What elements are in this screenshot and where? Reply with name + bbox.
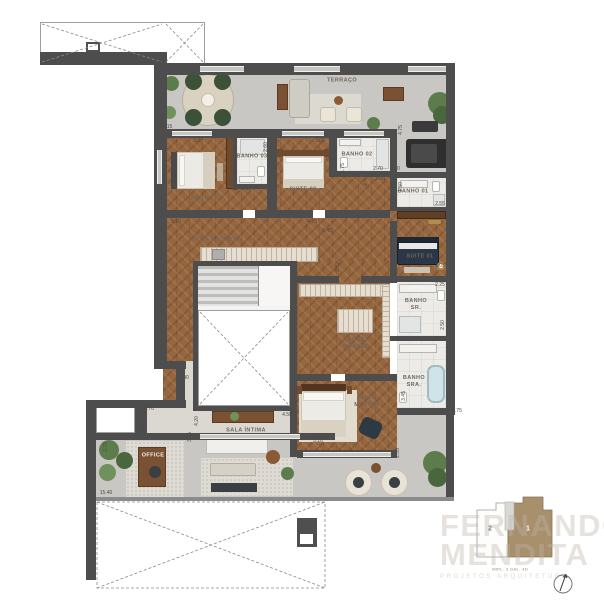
dimension-label: 2.25	[435, 282, 445, 288]
dimension-label: 1.75	[340, 163, 346, 173]
dimension-label: 4.50	[282, 412, 292, 418]
room-label: CLOSET MASTER	[343, 337, 369, 351]
gourmet-counter	[206, 439, 268, 454]
dimension-label: 3.02	[315, 138, 325, 144]
bed-pillows	[399, 243, 437, 249]
room-label: TERRAÇO	[327, 78, 357, 85]
dining-chair	[185, 73, 202, 90]
door-opening	[243, 210, 255, 218]
wall	[193, 406, 297, 411]
room-label: SALA ÍNTIMA	[226, 428, 266, 435]
window	[344, 131, 384, 136]
wall	[96, 400, 186, 408]
room-label: OFFICE	[142, 453, 165, 460]
office-void	[96, 405, 135, 433]
bed-headboard	[301, 384, 346, 391]
window	[200, 66, 244, 72]
dimension-label: 2.25	[435, 336, 445, 342]
bed-pillows	[303, 392, 344, 401]
dining-chair	[185, 109, 202, 126]
office-chair	[149, 466, 161, 478]
wall	[446, 63, 455, 413]
bed-blanket	[203, 152, 215, 189]
nightstand	[347, 386, 352, 394]
dimension-label: 2.60	[263, 142, 269, 152]
dimension-label: 3.45	[401, 391, 407, 401]
lounge-sofa	[210, 463, 256, 476]
wall	[390, 207, 455, 211]
closet-shelf-top	[299, 284, 383, 297]
dimension-label: 15.40	[100, 490, 113, 496]
window	[294, 66, 340, 72]
bed-pillows	[179, 155, 185, 186]
shower	[399, 316, 421, 333]
dimension-label: 3.15	[187, 432, 193, 442]
sideboard	[212, 411, 274, 423]
dimension-label: 2.35	[395, 448, 401, 458]
dimension-label: 2.70	[144, 406, 154, 412]
potted-plant	[281, 467, 294, 480]
closet-shelf-right	[382, 284, 390, 358]
dimension-label: 1.00	[375, 176, 385, 182]
elevator-void	[198, 310, 290, 406]
door-opening	[313, 210, 325, 218]
room-label: BANHO SR.	[405, 298, 427, 312]
window	[408, 66, 446, 72]
dimension-label: 1.40	[299, 275, 309, 281]
dimension-label: 1.50	[398, 182, 404, 192]
dimension-label: 2.62	[335, 262, 341, 272]
coffee-table	[334, 96, 343, 105]
window	[282, 131, 324, 136]
wall	[446, 413, 454, 500]
terrace-armchair	[346, 107, 362, 122]
nightstand	[297, 386, 302, 394]
lounge-chair-cushion	[353, 477, 364, 488]
window	[303, 452, 391, 457]
dimension-label: 3.60	[390, 166, 400, 172]
toilet	[432, 181, 440, 192]
wall	[390, 336, 455, 341]
floor-plan: 2 1 IMPL. 3 GAL. 4D FERNANDO MENDITA PRO…	[0, 0, 604, 600]
dimension-label: 5.10	[171, 219, 181, 225]
shower	[376, 139, 389, 169]
lounge-armchair	[266, 450, 280, 464]
tv-bench	[211, 483, 257, 492]
tree	[428, 468, 447, 487]
watermark: FERNANDO MENDITA PROJETOS ARQUITETURA	[440, 512, 604, 581]
dining-chair	[214, 73, 231, 90]
potted-plant	[116, 452, 133, 469]
wall	[233, 134, 237, 190]
sideboard-weights	[383, 87, 404, 101]
room-label: BANHO SRA.	[403, 375, 425, 389]
wall	[86, 400, 96, 580]
wall	[163, 210, 390, 218]
closet-island	[337, 309, 373, 333]
vanity	[400, 180, 428, 188]
wall	[193, 261, 297, 266]
double-vanity	[399, 344, 437, 353]
nightstand	[277, 149, 283, 157]
dimension-label: 2.70	[373, 166, 383, 172]
side-table	[371, 463, 381, 473]
dimension-label: 5.10	[313, 438, 323, 444]
wall	[235, 184, 269, 189]
dimension-label: 1.40	[179, 375, 189, 381]
room-label: BANHO 03	[236, 154, 267, 161]
corridor-wardrobe	[397, 211, 446, 219]
wall	[40, 52, 166, 65]
room-label: SUITE MASTER	[354, 395, 380, 409]
dimension-label: 8.45	[322, 228, 332, 234]
open-below-x-lines	[97, 502, 325, 588]
window	[157, 150, 162, 184]
dimension-label: 2.75	[103, 442, 109, 452]
treadmill-belt	[411, 144, 437, 163]
dimension-label: 1.50	[140, 423, 146, 433]
open-below-outline	[97, 502, 325, 588]
room-label: BANHO 02	[341, 152, 372, 159]
wall	[329, 129, 337, 177]
terrace-armchair	[320, 107, 336, 122]
double-vanity	[399, 284, 437, 293]
dimension-label: 4.75	[307, 219, 317, 225]
decor-plant	[230, 412, 239, 421]
dimension-label: 2.55	[435, 201, 445, 207]
dining-centerpiece	[201, 93, 215, 107]
bench	[217, 163, 223, 181]
door-opening	[331, 374, 345, 381]
wall	[390, 276, 455, 282]
fireplace-opening	[300, 534, 313, 544]
watermark-line3: PROJETOS ARQUITETURA	[440, 575, 604, 581]
bench	[404, 267, 430, 273]
lounge-chair-cushion	[389, 477, 400, 488]
room-label: SUITE 03	[190, 196, 217, 203]
potted-plant	[99, 464, 116, 481]
toilet	[257, 166, 265, 177]
toilet	[437, 290, 445, 301]
wall	[297, 374, 397, 381]
vanity	[339, 139, 361, 146]
wall	[290, 261, 297, 457]
bathtub	[427, 365, 445, 403]
gold-fixture	[428, 220, 441, 224]
bed-pillows	[285, 157, 322, 163]
stair-landing	[258, 266, 290, 306]
dimension-label: 3.05	[435, 263, 445, 269]
wall	[390, 221, 397, 283]
room-label: COPA NOTURNA	[192, 237, 241, 244]
dimension-label: 15.15	[160, 124, 173, 130]
wall	[361, 276, 390, 283]
dimension-label: 3.25	[193, 138, 203, 144]
void-marker	[86, 42, 100, 52]
dimension-label: 0.75	[452, 408, 462, 414]
terrace-railing	[96, 497, 454, 501]
dimension-label: 1.60	[241, 186, 251, 192]
weight-rack	[412, 121, 438, 132]
dimension-label: 2.40	[363, 176, 369, 186]
wall	[193, 261, 198, 411]
wall	[390, 172, 455, 178]
window	[172, 131, 212, 136]
staircase	[198, 266, 258, 306]
room-label: SUITE 02	[289, 187, 316, 194]
dimension-label: 2.50	[440, 320, 446, 330]
dimension-label: 4.75	[398, 125, 404, 135]
vanity	[239, 176, 255, 183]
terrace-floor-right-strip	[397, 413, 446, 438]
terrace-sofa	[289, 79, 310, 118]
dimension-label: 4.20	[194, 416, 200, 426]
console-desk	[277, 84, 288, 110]
watermark-line2: MENDITA	[440, 541, 604, 570]
window	[200, 434, 300, 439]
dining-chair	[214, 109, 231, 126]
copa-sink	[212, 249, 225, 260]
room-label: SUITE 01	[406, 254, 433, 261]
